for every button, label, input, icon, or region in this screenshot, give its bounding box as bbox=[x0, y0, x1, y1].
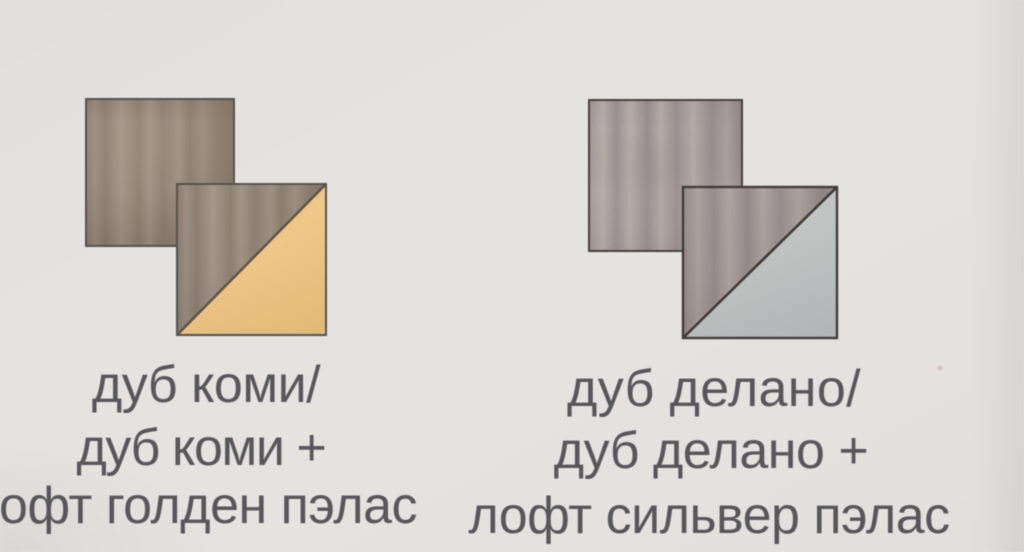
svg-text:дуб коми +: дуб коми + bbox=[76, 419, 325, 477]
svg-text:дуб делано/: дуб делано/ bbox=[567, 360, 861, 418]
svg-text:лофт сильвер пэлас: лофт сильвер пэлас bbox=[468, 487, 949, 545]
svg-text:дуб делано +: дуб делано + bbox=[554, 422, 868, 480]
svg-text:дуб коми/: дуб коми/ bbox=[92, 356, 321, 414]
svg-text:лофт голден пэлас: лофт голден пэлас bbox=[0, 477, 417, 535]
